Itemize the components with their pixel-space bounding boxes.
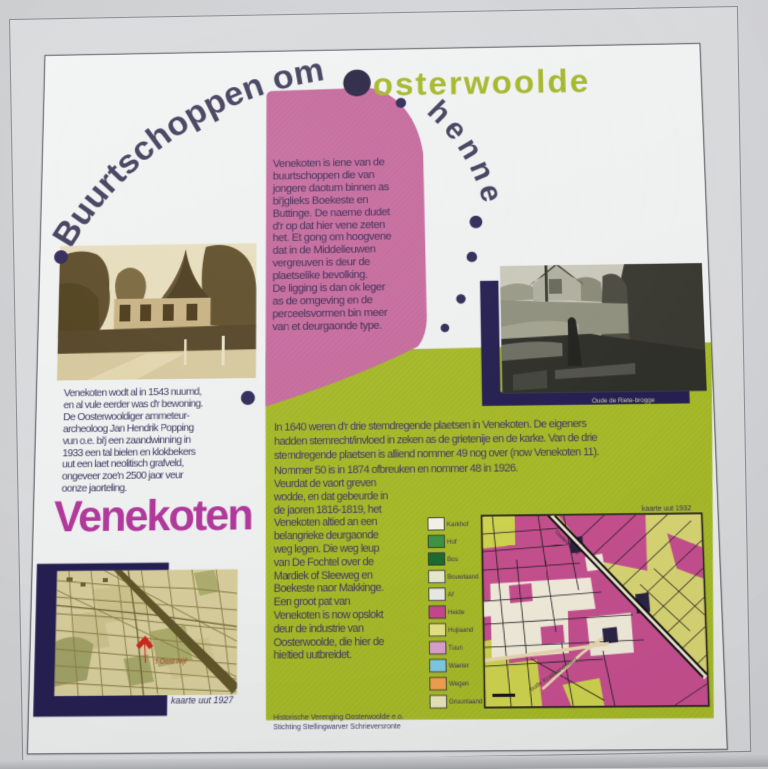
svg-text:'t Oost Nijf: 't Oost Nijf (154, 658, 188, 666)
svg-text:Gruunlaand: Gruunlaand (449, 699, 483, 706)
svg-text:Oude de Riete-brogge: Oude de Riete-brogge (592, 397, 656, 404)
svg-text:Bos: Bos (447, 557, 458, 564)
svg-text:Heide: Heide (448, 610, 465, 617)
svg-text:Af: Af (448, 592, 454, 599)
svg-text:Hof: Hof (447, 539, 457, 546)
svg-text:Bouwlaand: Bouwlaand (447, 574, 478, 581)
svg-text:Wegen: Wegen (449, 681, 469, 688)
svg-text:Tuun: Tuun (448, 645, 462, 652)
svg-text:osterwoolde: osterwoolde (373, 63, 591, 103)
svg-text:Waeter: Waeter (449, 663, 469, 670)
svg-text:kaarte uut 1927: kaarte uut 1927 (171, 695, 234, 706)
svg-text:Karkhof: Karkhof (447, 522, 469, 529)
svg-text:Hujlaand: Hujlaand (448, 627, 473, 634)
svg-text:kaarte uut 1932: kaarte uut 1932 (642, 505, 692, 513)
svg-text:henne: henne (421, 94, 511, 212)
